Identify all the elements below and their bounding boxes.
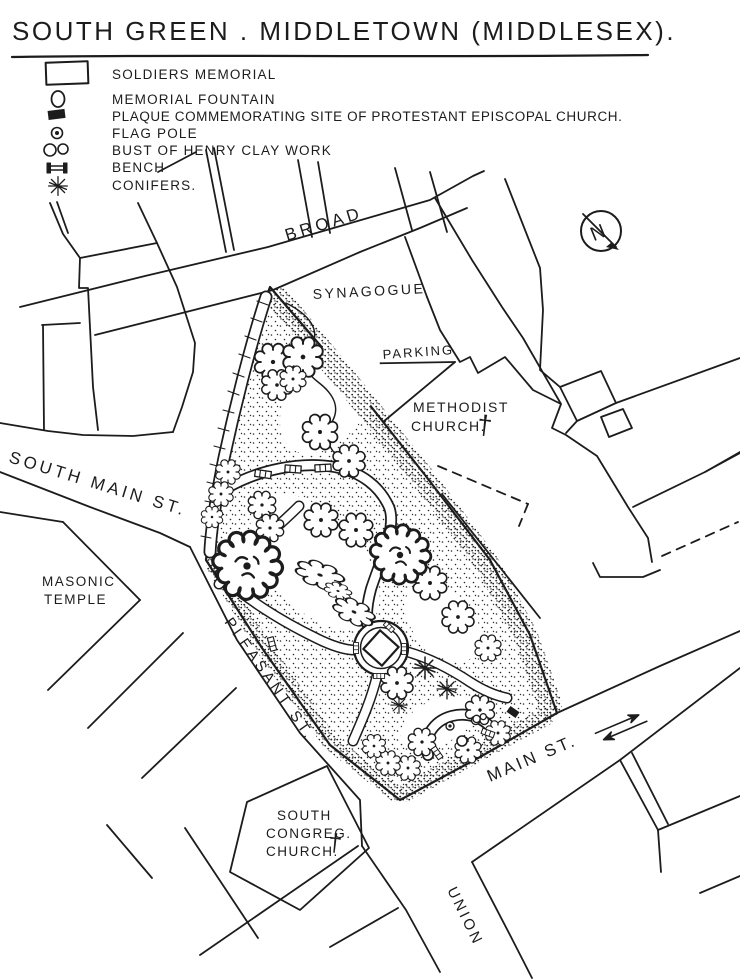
legend-label: BENCH	[112, 160, 165, 175]
bench-icon	[373, 674, 384, 679]
flag-pole-marker	[446, 722, 454, 730]
conifer-icon	[391, 697, 408, 714]
place-label-congreg-1: SOUTH	[277, 808, 332, 823]
place-label-methodist-1: METHODIST	[413, 399, 509, 415]
conifer-icon	[437, 679, 457, 699]
legend-label: MEMORIAL FOUNTAIN	[112, 92, 276, 107]
bench-icon	[354, 642, 359, 653]
page-title: SOUTH GREEN . MIDDLETOWN (MIDDLESEX).	[12, 16, 676, 46]
bench-icon	[285, 465, 301, 473]
congreg-cross-icon: †	[327, 828, 344, 857]
bench-icon	[255, 469, 272, 478]
left-block-step-b	[43, 325, 44, 430]
legend-label: CONIFERS.	[112, 178, 196, 193]
place-label-methodist-2: CHURCH.	[411, 418, 486, 434]
conifer-icon	[414, 657, 436, 679]
methodist-cross-icon: †	[476, 409, 494, 440]
bench-icon	[315, 464, 331, 472]
legend-label: BUST OF HENRY CLAY WORK	[112, 143, 332, 158]
conifers-icon	[49, 177, 68, 196]
place-label-masonic-2: TEMPLE	[44, 592, 107, 607]
memorial-fountain-marker	[457, 736, 467, 746]
map-canvas: BROAD SYNAGOGUE PARKING METHODIST CHURCH…	[0, 0, 740, 980]
title-underline	[12, 55, 648, 57]
legend-label: SOLDIERS MEMORIAL	[112, 67, 276, 82]
map-page: BROAD SYNAGOGUE PARKING METHODIST CHURCH…	[0, 0, 740, 980]
bench-icon	[402, 643, 407, 654]
legend-label: FLAG POLE	[112, 126, 198, 141]
legend-label: PLAQUE COMMEMORATING SITE OF PROTESTANT …	[112, 109, 623, 124]
place-label-masonic-1: MASONIC	[42, 574, 116, 589]
